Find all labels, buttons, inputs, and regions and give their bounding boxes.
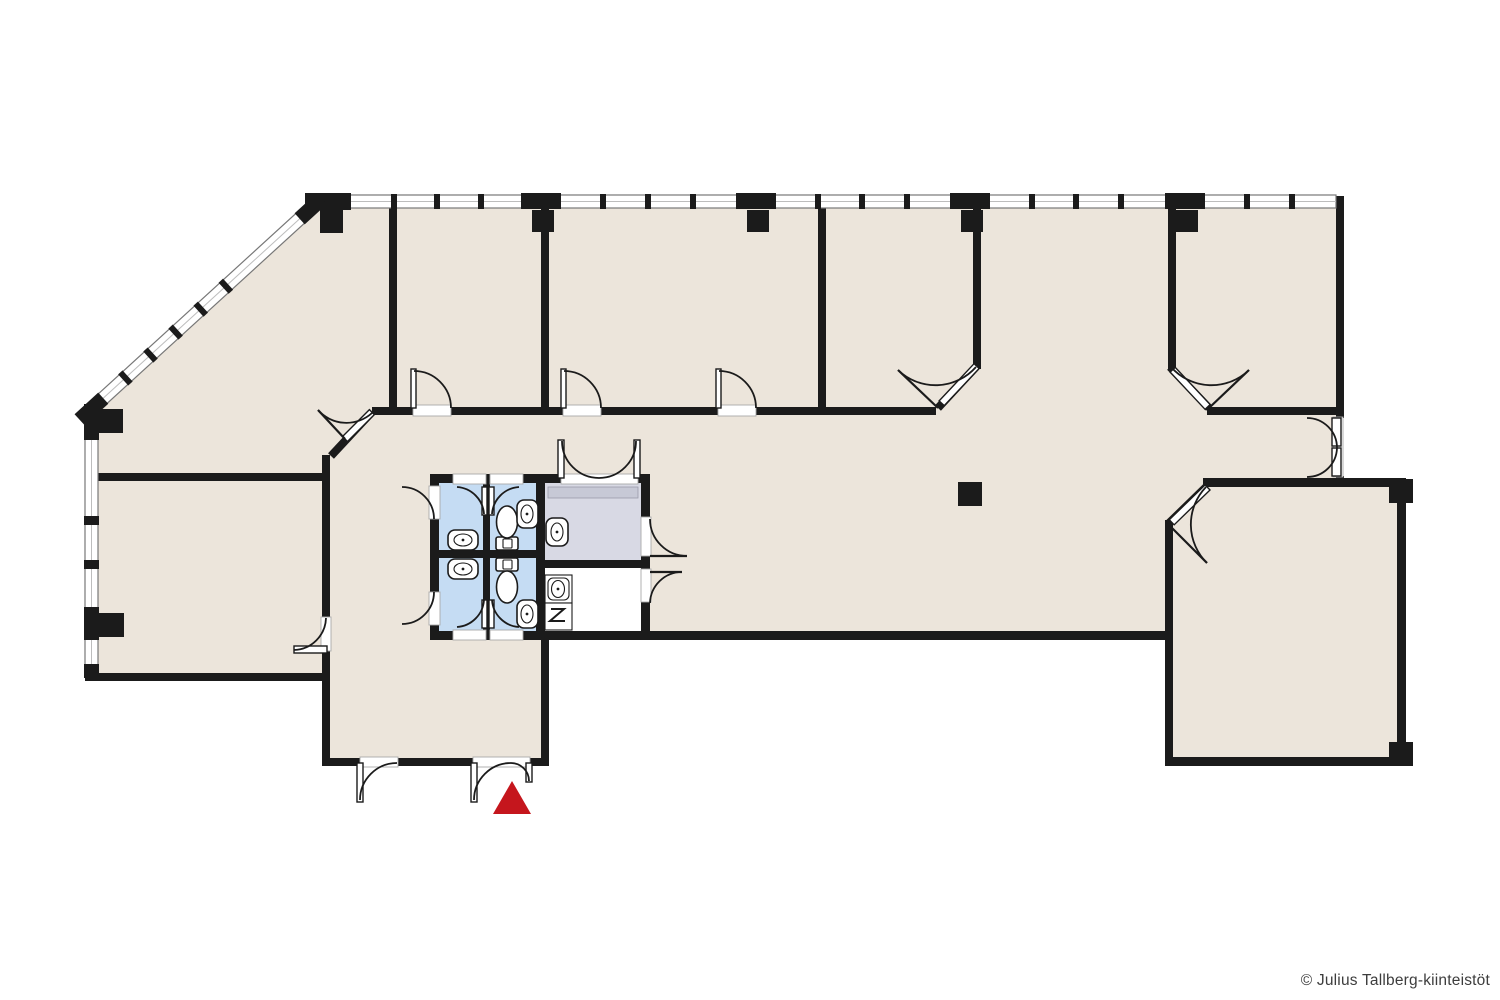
copyright-text: © Julius Tallberg-kiinteistöt — [1301, 972, 1490, 990]
window-wall-left — [84, 404, 99, 678]
electrical-panel-icon — [545, 603, 572, 630]
sink-icon — [448, 559, 478, 579]
sink-icon — [517, 600, 538, 628]
sink-unit-icon — [545, 575, 572, 603]
entrance-marker — [493, 781, 531, 814]
free-standing-column — [958, 482, 982, 506]
entrance-door-left — [357, 763, 397, 802]
toilet-icon — [496, 558, 518, 603]
floor-plan-page: © Julius Tallberg-kiinteistöt — [0, 0, 1500, 1000]
sink-icon — [448, 530, 478, 550]
sink-icon — [546, 518, 568, 546]
toilet-icon — [496, 506, 518, 550]
sink-icon — [517, 500, 538, 528]
service-room-counter — [548, 487, 638, 498]
window-wall-top — [305, 193, 1336, 210]
floor-plan — [0, 0, 1500, 1000]
